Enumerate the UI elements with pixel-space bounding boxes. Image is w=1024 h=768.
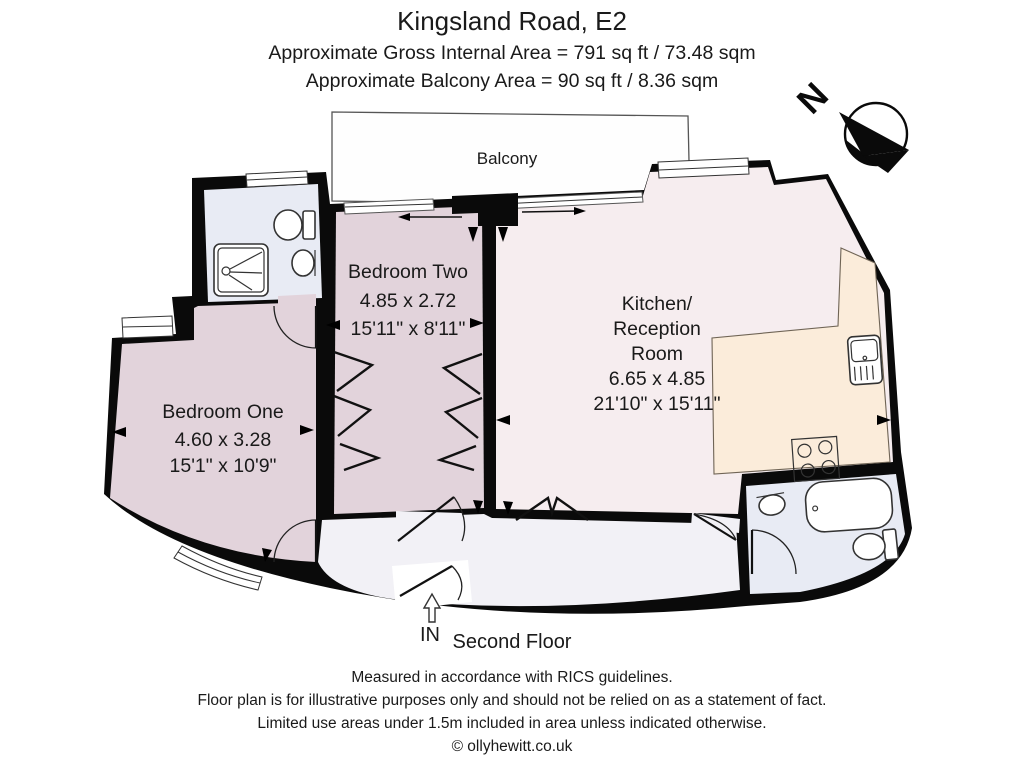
kitchen-metric: 6.65 x 4.85 [609, 368, 706, 390]
toilet-cistern [303, 211, 315, 239]
toilet-bowl [274, 210, 302, 240]
floor-name: Second Floor [0, 631, 1024, 654]
copyright: © ollyhewitt.co.uk [0, 735, 1024, 758]
ensuite-window [246, 171, 308, 187]
disclaimer-line: Limited use areas under 1.5m included in… [0, 712, 1024, 735]
bedroom-two-metric: 4.85 x 2.72 [360, 290, 457, 312]
ensuite-sink-icon [292, 250, 315, 276]
disclaimer: Measured in accordance with RICS guideli… [0, 666, 1024, 758]
compass: N [789, 74, 909, 173]
kitchen-sink-icon [847, 335, 882, 385]
kitchen-top-window [658, 158, 749, 178]
ensuite-toilet-icon [274, 210, 315, 240]
shower-icon [214, 244, 268, 296]
sink-basin [292, 250, 314, 276]
kitchen-imperial: 21'10" x 15'11" [593, 393, 720, 415]
compass-north-label: N [789, 74, 836, 121]
bedroom-one-metric: 4.60 x 3.28 [175, 429, 272, 451]
disclaimer-line: Floor plan is for illustrative purposes … [0, 689, 1024, 712]
disclaimer-line: Measured in accordance with RICS guideli… [0, 666, 1024, 689]
kitchen-name-line2: Reception [613, 318, 701, 340]
kitchen-name-line1: Kitchen/ [622, 293, 693, 315]
slide-direction-line [522, 211, 578, 212]
bathtub-icon [804, 477, 893, 533]
bedroom-two-imperial: 15'11" x 8'11" [351, 318, 466, 340]
floorplan-page: Kingsland Road, E2 Approximate Gross Int… [0, 0, 1024, 768]
ensuite-door-gap [278, 294, 316, 310]
balcony-label: Balcony [477, 149, 538, 168]
bedroom-one-imperial: 15'1" x 10'9" [170, 455, 277, 477]
kitchen-name-line3: Room [631, 343, 683, 365]
bathtub [804, 477, 893, 533]
bedroom-two-name: Bedroom Two [348, 261, 468, 283]
hallway [318, 514, 740, 606]
bedroom-one-upper-window [122, 316, 173, 338]
bedroom-one-name: Bedroom One [162, 401, 283, 423]
